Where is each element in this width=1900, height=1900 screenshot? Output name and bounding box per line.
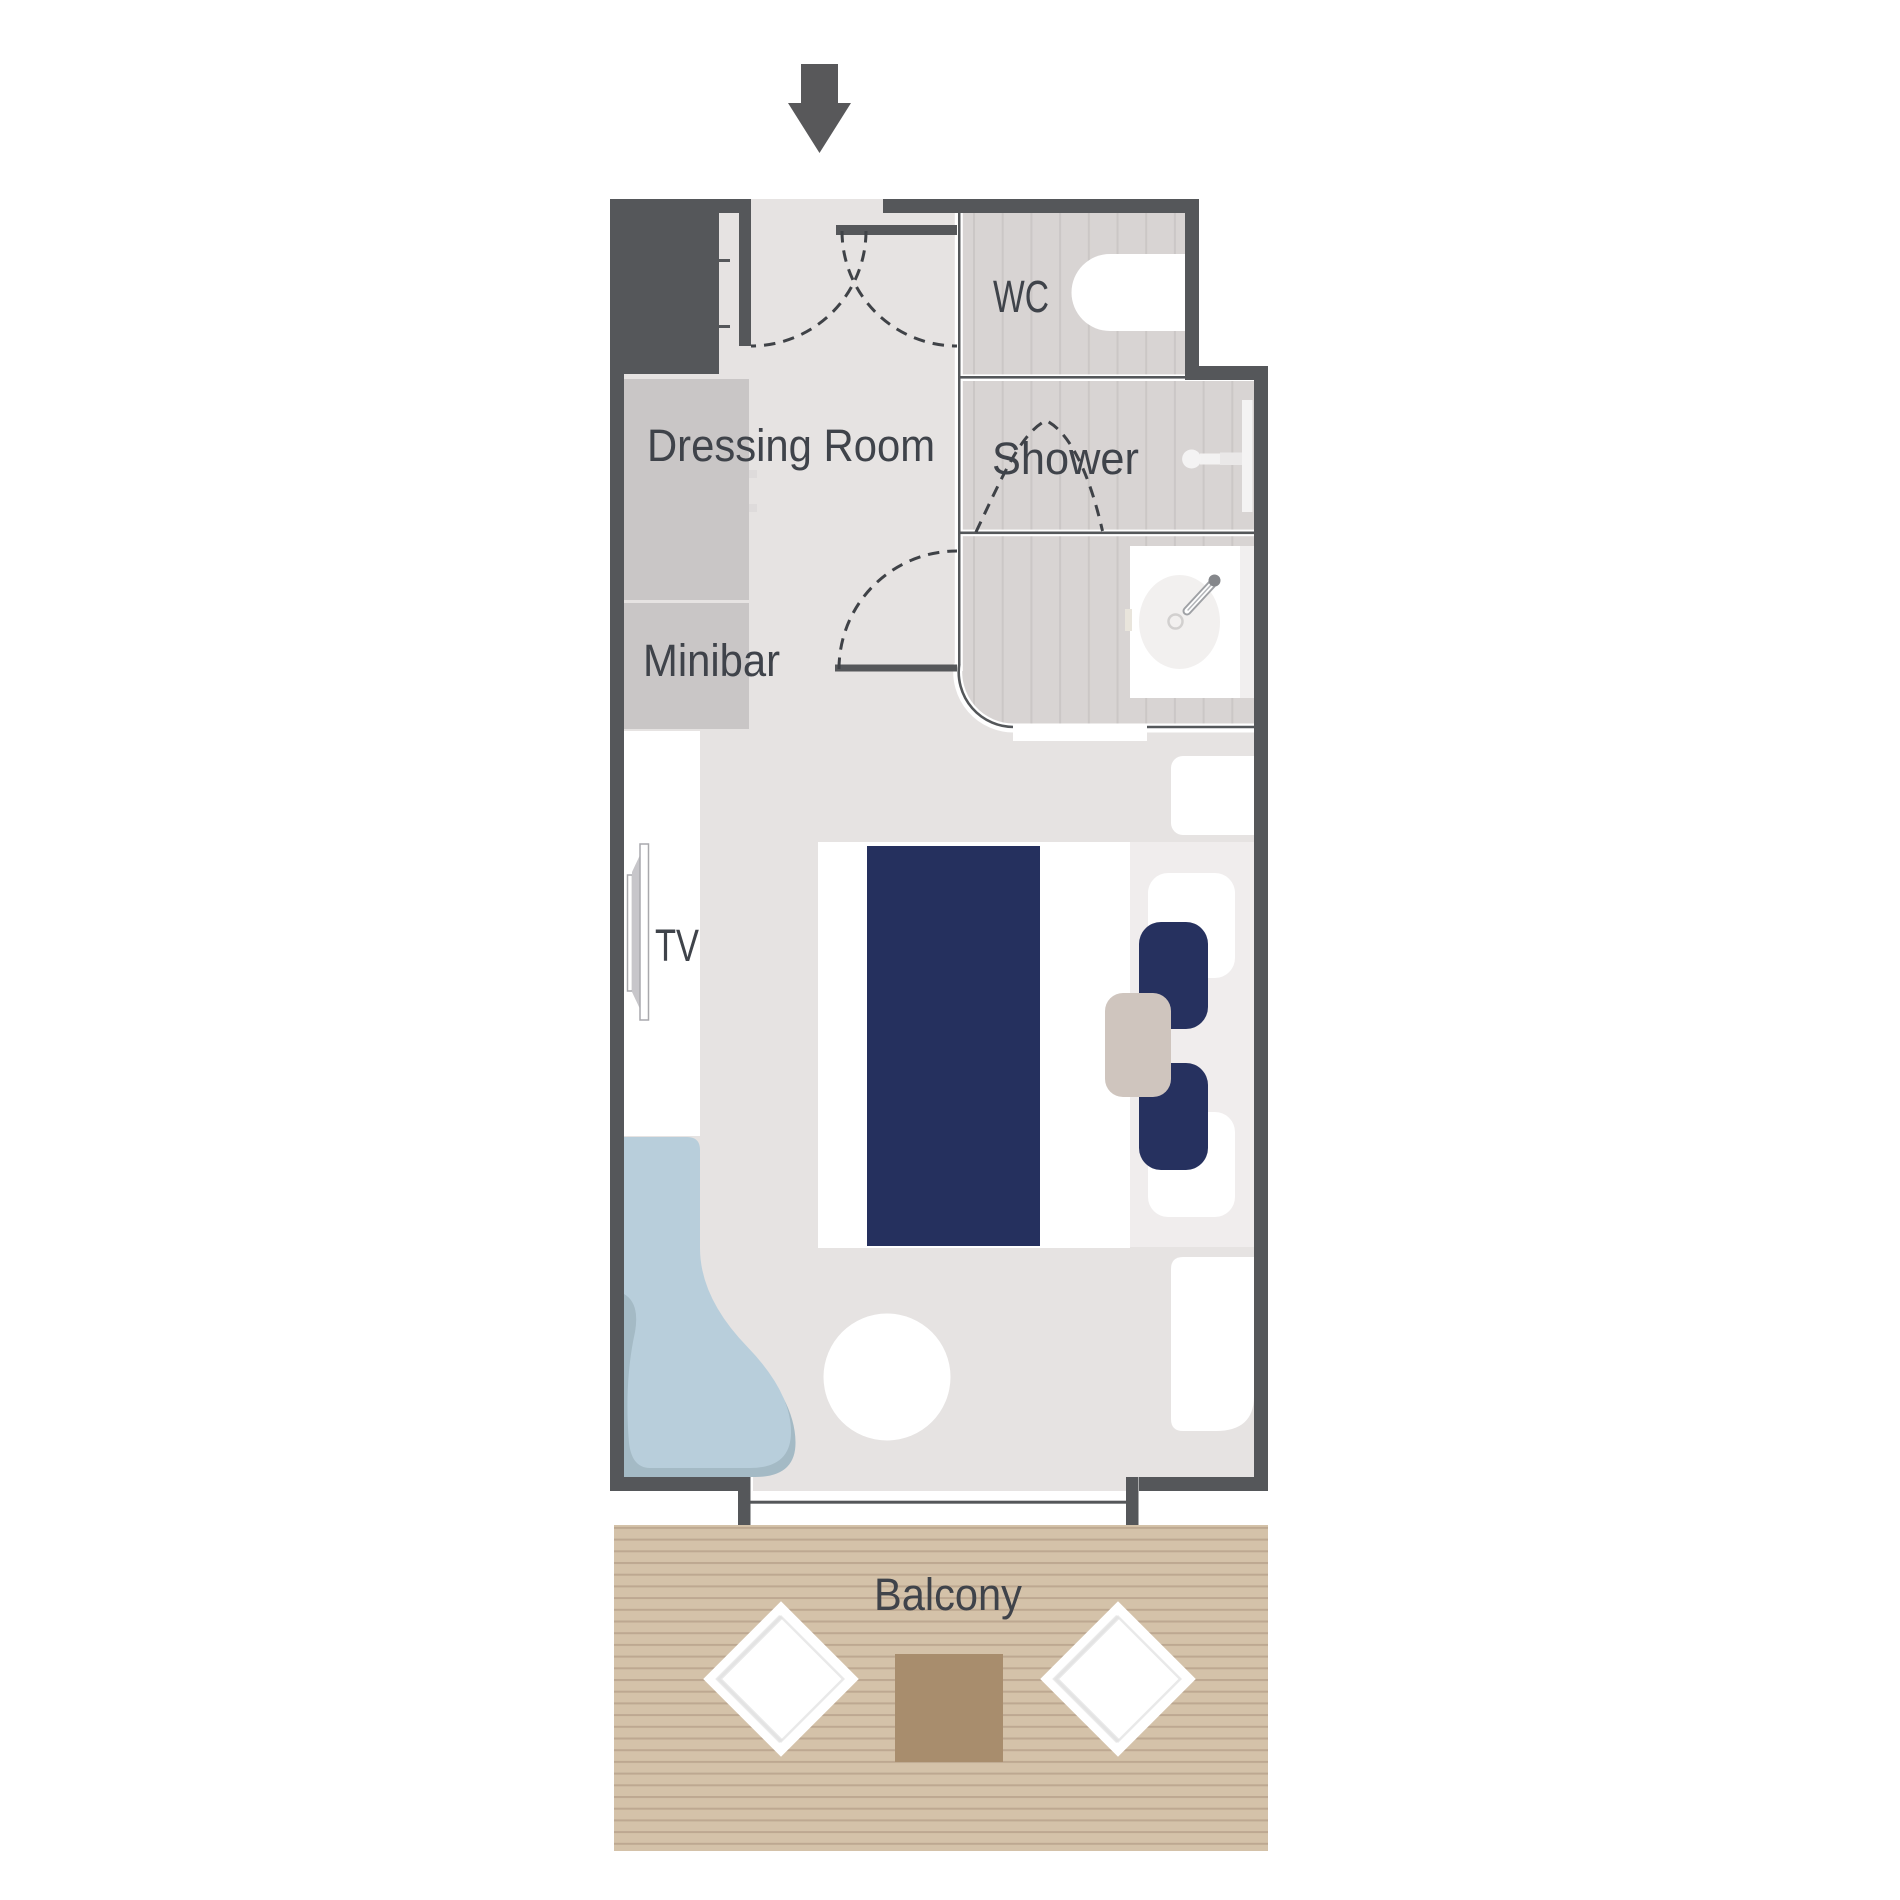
svg-text:Shower: Shower [992, 434, 1139, 484]
svg-text:Dressing Room: Dressing Room [647, 422, 935, 472]
svg-text:Balcony: Balcony [874, 1571, 1022, 1621]
svg-text:WC: WC [993, 272, 1049, 322]
svg-text:TV: TV [655, 922, 699, 971]
svg-text:Minibar: Minibar [643, 637, 780, 687]
